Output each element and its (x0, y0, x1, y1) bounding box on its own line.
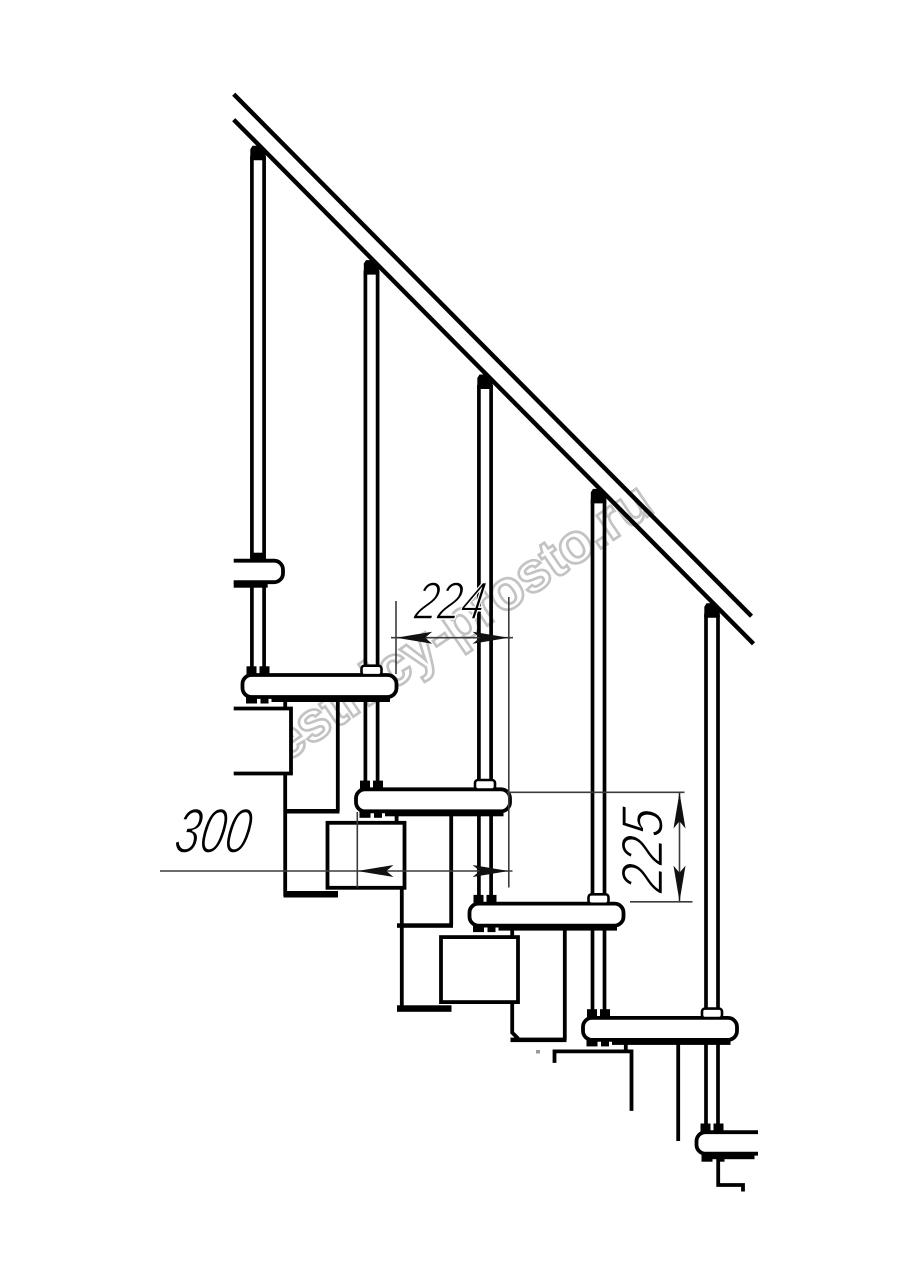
svg-text:224: 224 (410, 572, 490, 631)
svg-text:225: 225 (609, 803, 676, 896)
svg-text:300: 300 (170, 797, 257, 866)
